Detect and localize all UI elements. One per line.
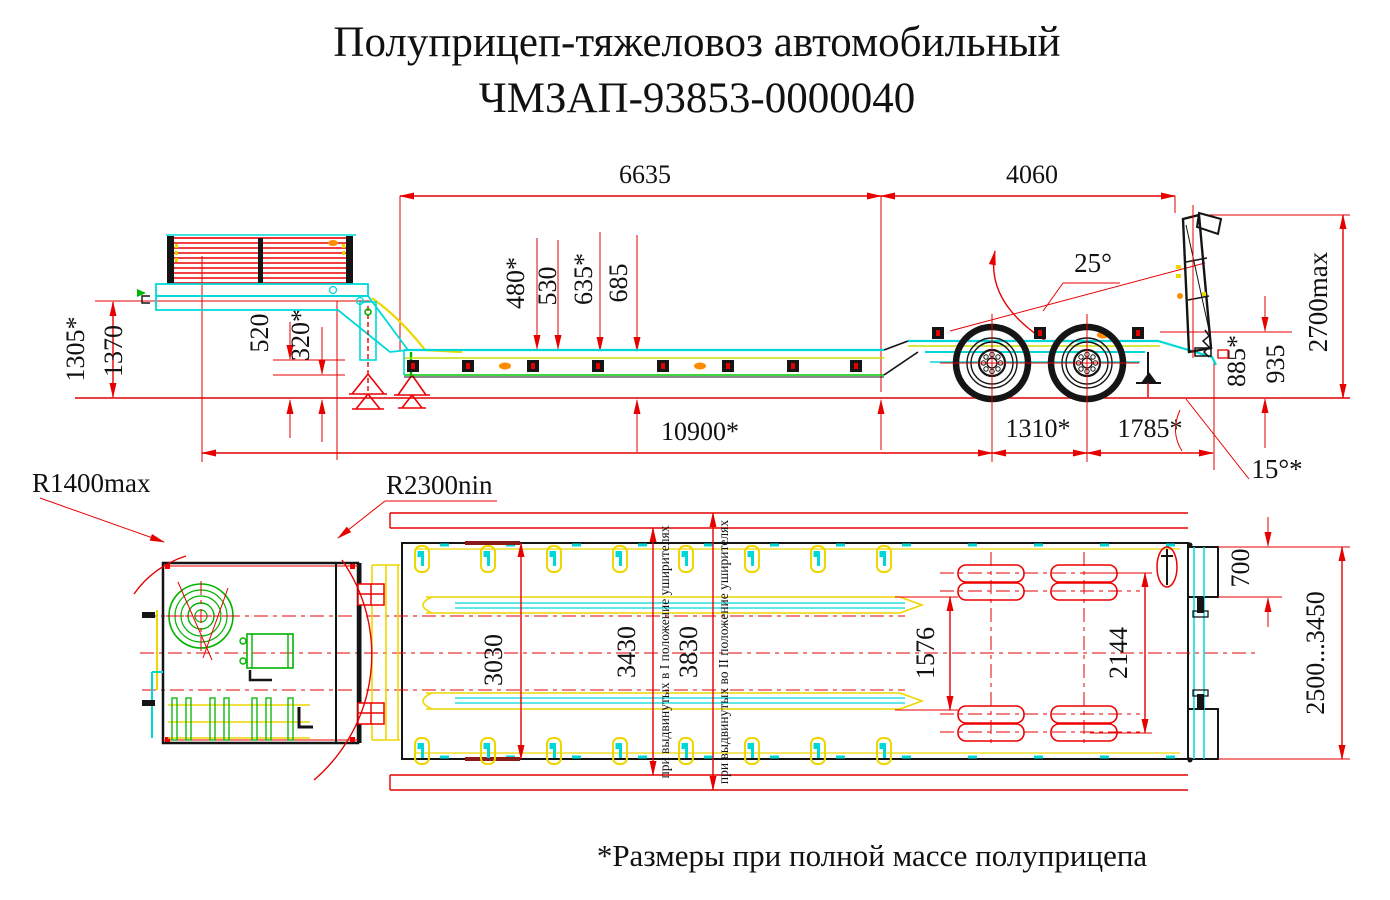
dim-deck-clearance: 320*	[286, 309, 315, 361]
note-pos-1: при выдвинутых в I положение уширителях	[657, 525, 672, 778]
dim-departure-angle: 15°*	[1251, 454, 1302, 484]
side-view-dimensions: 6635 4060 2700max 1305* 1370 520 320* 48…	[61, 160, 1350, 484]
note-pos-2: при выдвинутых во II положение уширителя…	[716, 520, 731, 784]
plan-gooseneck	[134, 556, 400, 780]
drawing-page: Полуприцеп-тяжеловоз автомобильный ЧМЗАП…	[0, 0, 1390, 900]
dim-deck-height-4: 685	[604, 264, 633, 303]
dim-deck-height-1: 480*	[501, 257, 530, 309]
dim-deck-height-3: 635*	[569, 253, 598, 305]
gooseneck-bolster	[166, 235, 356, 284]
dim-gooseneck-clearance: 520	[245, 314, 274, 353]
dim-gooseneck-angle: 25°	[1074, 248, 1112, 278]
dim-deck-height-2: 530	[533, 267, 562, 306]
dim-kingpin-to-axle: 10900*	[661, 417, 739, 446]
dim-rear-height-laden: 885*	[1222, 335, 1251, 387]
gooseneck-slats	[168, 698, 313, 740]
title-block: Полуприцеп-тяжеловоз автомобильный ЧМЗАП…	[333, 19, 1060, 122]
dim-front-height: 1370	[99, 325, 128, 377]
drawing-canvas: Полуприцеп-тяжеловоз автомобильный ЧМЗАП…	[0, 0, 1390, 900]
widener-rails	[390, 513, 1188, 790]
landing-gear	[349, 302, 430, 409]
dim-width-pos-2: 3830	[674, 626, 703, 678]
dim-track-inner: 1576	[911, 627, 940, 679]
dim-overall-height: 2700max	[1303, 251, 1333, 352]
dim-front-radius: R1400max	[32, 468, 151, 498]
front-radius-arc	[134, 556, 186, 594]
dim-rear-radius: R2300nin	[386, 470, 493, 500]
dim-ramp-width-offset: 700	[1226, 549, 1255, 588]
low-deck	[404, 350, 884, 377]
dim-rear-height: 935	[1261, 345, 1290, 384]
dim-front-height-laden: 1305*	[61, 317, 90, 382]
dim-width-pos-1: 3430	[612, 626, 641, 678]
dim-rear-overhang: 1785*	[1118, 414, 1183, 443]
footnote: *Размеры при полной массе полуприцепа	[597, 838, 1148, 873]
dim-deck-length: 6635	[619, 160, 671, 189]
spare-wheel	[166, 581, 236, 660]
air-tank	[240, 634, 293, 680]
dim-rear-length: 4060	[1006, 160, 1058, 189]
dim-overall-width: 2500...3450	[1301, 591, 1330, 715]
page-title: Полуприцеп-тяжеловоз автомобильный	[333, 19, 1060, 66]
dim-axle-base: 1310*	[1006, 414, 1071, 443]
dim-track-outer: 2144	[1104, 627, 1133, 679]
plan-view: 3030 3430 при выдвинутых в I положение у…	[32, 468, 1350, 790]
dim-deck-width: 3030	[479, 634, 508, 686]
page-subtitle: ЧМЗАП-93853-0000040	[479, 75, 915, 122]
rear-support-leg	[1136, 352, 1161, 397]
rear-ramp	[1176, 205, 1221, 358]
